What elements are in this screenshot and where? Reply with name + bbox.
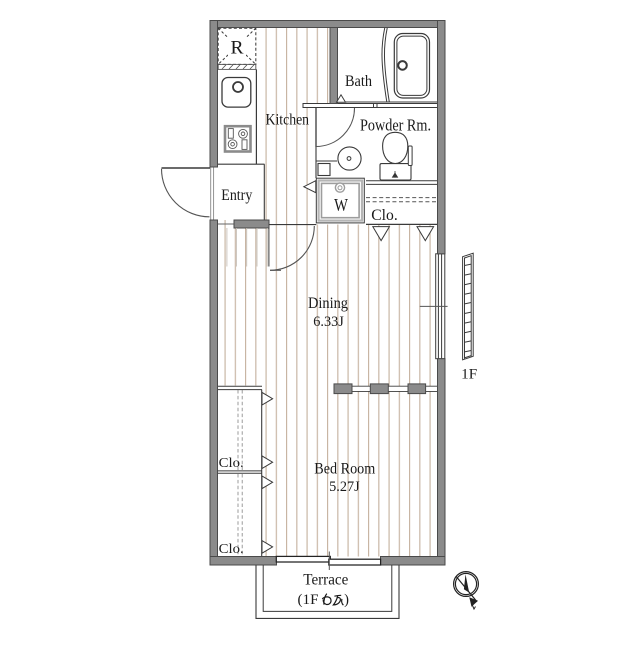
svg-text:(1F: (1F <box>298 592 319 608</box>
svg-text:W: W <box>334 195 348 215</box>
svg-text:Kitchen: Kitchen <box>266 111 310 128</box>
svg-text:R: R <box>231 38 244 59</box>
svg-text:Entry: Entry <box>221 187 252 204</box>
svg-text:): ) <box>344 592 349 608</box>
svg-text:Clo.: Clo. <box>219 541 244 556</box>
svg-text:Dining: Dining <box>308 295 348 312</box>
svg-text:Bed Room: Bed Room <box>314 460 375 477</box>
svg-text:Powder Rm.: Powder Rm. <box>360 116 431 135</box>
svg-text:Clo.: Clo. <box>219 455 244 470</box>
svg-text:5.27J: 5.27J <box>329 479 360 495</box>
svg-text:Clo.: Clo. <box>371 207 398 224</box>
svg-text:Terrace: Terrace <box>303 571 348 588</box>
svg-text:Bath: Bath <box>345 73 372 90</box>
svg-text:6.33J: 6.33J <box>313 314 344 330</box>
svg-text:1F: 1F <box>461 367 477 383</box>
